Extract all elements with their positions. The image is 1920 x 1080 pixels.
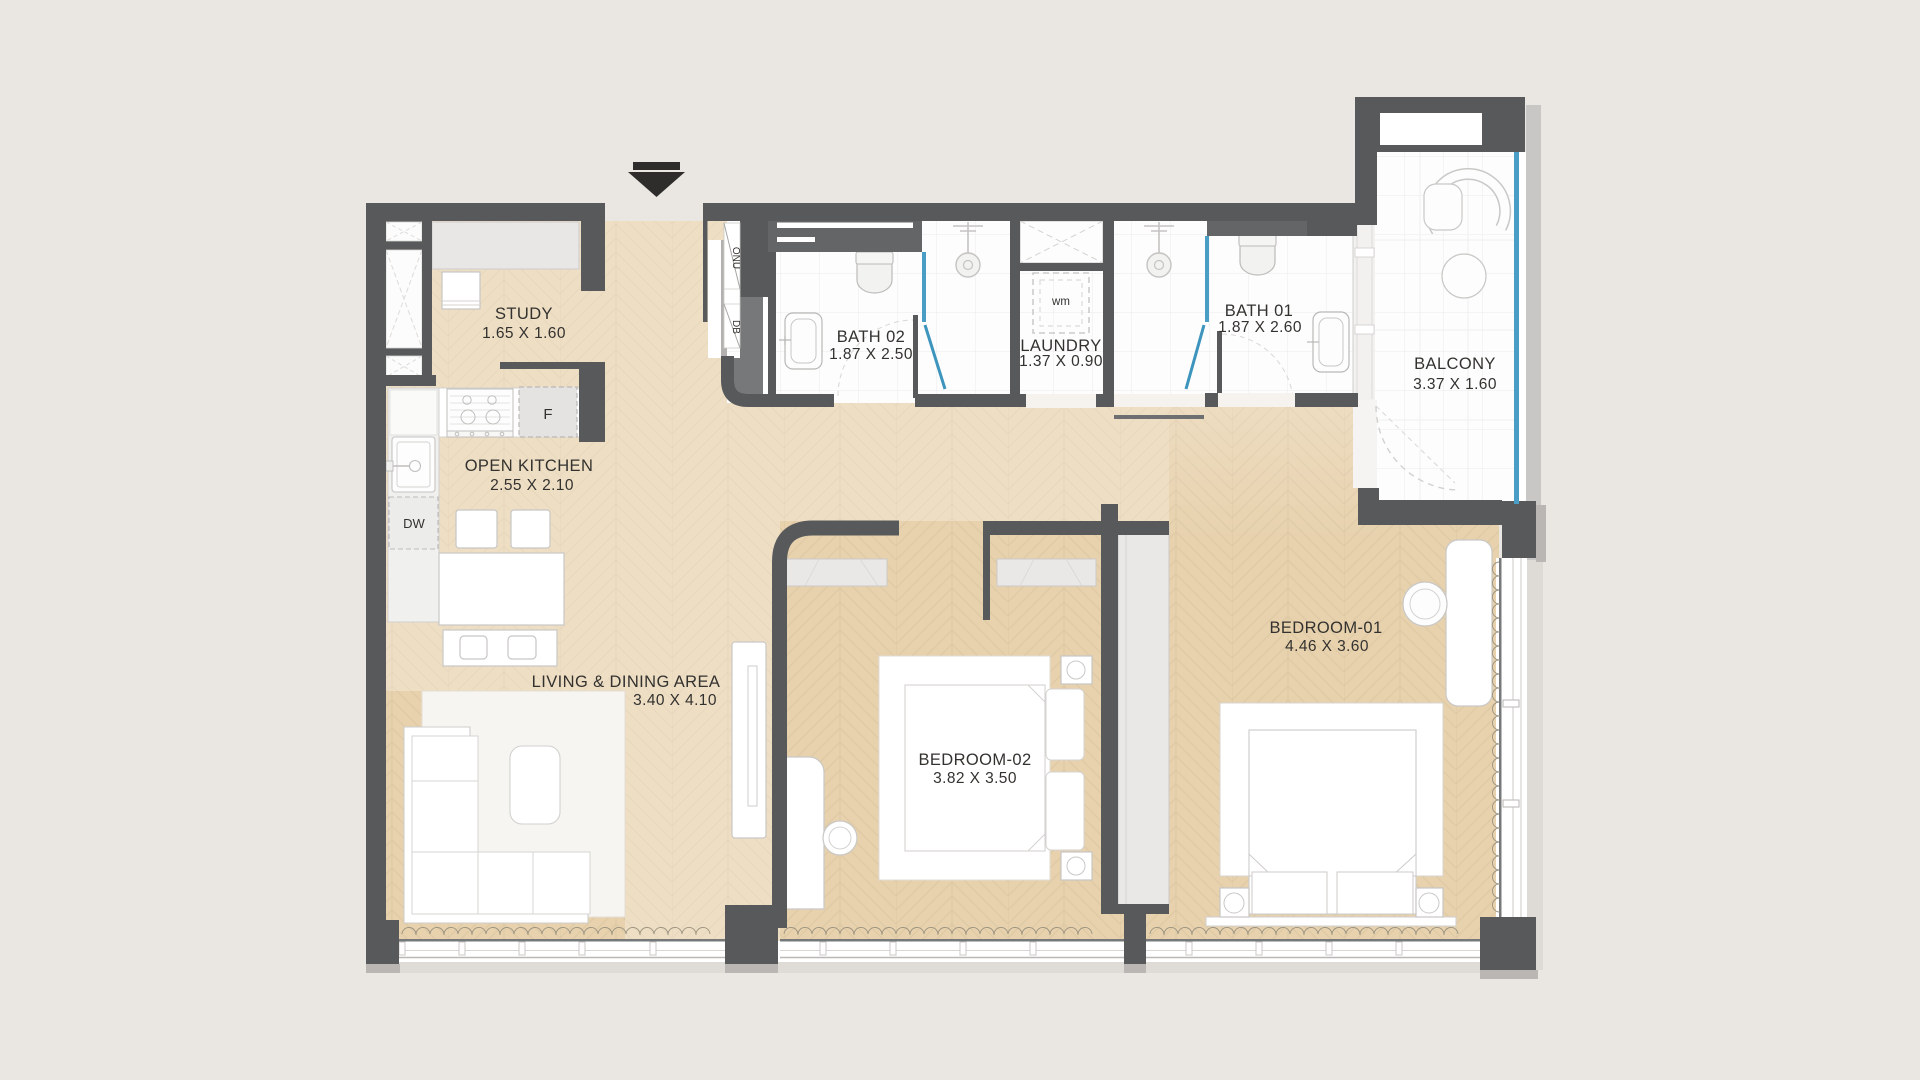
svg-text:OPEN KITCHEN: OPEN KITCHEN xyxy=(465,457,594,475)
svg-text:STUDY: STUDY xyxy=(495,305,553,323)
svg-text:3.40 X 4.10: 3.40 X 4.10 xyxy=(633,692,717,709)
svg-text:BALCONY: BALCONY xyxy=(1414,355,1496,373)
svg-text:1.65 X 1.60: 1.65 X 1.60 xyxy=(482,325,566,342)
svg-text:F: F xyxy=(543,406,552,423)
svg-text:BEDROOM-02: BEDROOM-02 xyxy=(918,751,1031,769)
svg-text:LIVING & DINING AREA: LIVING & DINING AREA xyxy=(532,673,721,691)
svg-text:3.37 X 1.60: 3.37 X 1.60 xyxy=(1413,376,1497,393)
svg-text:BATH 01: BATH 01 xyxy=(1225,302,1294,320)
svg-text:wm: wm xyxy=(1051,296,1070,308)
svg-text:1.37 X 0.90: 1.37 X 0.90 xyxy=(1019,353,1103,370)
svg-text:BATH 02: BATH 02 xyxy=(837,328,906,346)
svg-text:1.87 X 2.60: 1.87 X 2.60 xyxy=(1218,319,1302,336)
svg-text:3.82 X 3.50: 3.82 X 3.50 xyxy=(933,770,1017,787)
svg-text:DW: DW xyxy=(403,516,425,531)
svg-text:4.46 X 3.60: 4.46 X 3.60 xyxy=(1285,638,1369,655)
svg-text:DB: DB xyxy=(730,320,741,334)
svg-text:ONU: ONU xyxy=(730,247,741,269)
svg-text:BEDROOM-01: BEDROOM-01 xyxy=(1269,619,1382,637)
svg-text:2.55 X 2.10: 2.55 X 2.10 xyxy=(490,477,574,494)
svg-text:1.87 X 2.50: 1.87 X 2.50 xyxy=(829,346,913,363)
